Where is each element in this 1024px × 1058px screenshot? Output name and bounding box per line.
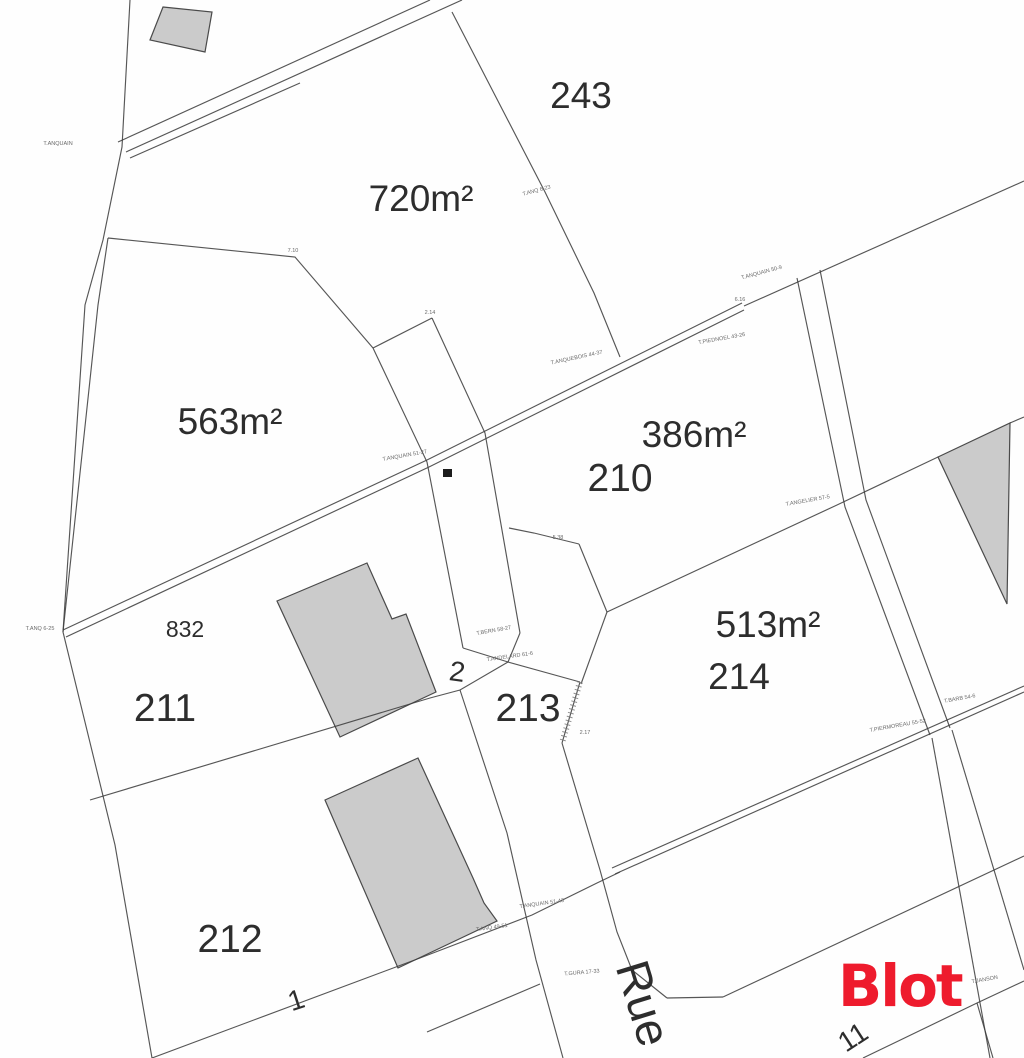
survey-mark-label: 6.16 (735, 297, 746, 303)
survey-mark-label: T.ANGELIER 57-5 (785, 494, 830, 508)
survey-mark-label: T.ANQUAIN 51-43 (519, 898, 564, 910)
parcel-211: 211 (134, 687, 196, 730)
lot-1: 1 (284, 983, 308, 1017)
area-513: 513m² (716, 604, 821, 645)
boundary-lot11-branch (977, 1003, 993, 1058)
divider-720-563 (108, 238, 373, 348)
street-bottom-flat (667, 997, 723, 998)
boundary-lot1-south (427, 984, 540, 1032)
boundary-triangle-ext (1010, 417, 1024, 423)
road-top-lower-edge-2 (130, 83, 300, 158)
survey-mark-label: T.BERN 58-27 (476, 625, 512, 637)
area-563: 563m² (178, 401, 283, 442)
survey-mark-label: T.BARB 54-6 (944, 693, 976, 704)
hatched-boundary (562, 682, 580, 743)
notch-210-b (579, 544, 607, 612)
building-parcel-212 (325, 758, 497, 968)
survey-mark-label: T.ANQ 6-25 (26, 626, 55, 632)
survey-mark-label: 7.10 (288, 248, 299, 254)
survey-mark-label: T.ANQUAIN 51-27 (382, 449, 427, 463)
parcel-832: 832 (166, 616, 204, 642)
building-parcel-211 (277, 563, 436, 737)
survey-mark-label: T.PIERMOREAU 55-52 (869, 718, 926, 734)
blot-logo: Blot (838, 957, 962, 1015)
strip-middle-left (373, 348, 463, 648)
survey-mark-label: T.ANDELARD 61-6 (486, 651, 533, 663)
divider-243-720 (452, 12, 620, 357)
diagonal-east-single (744, 181, 1024, 306)
boundary-south-214-upper (612, 686, 1024, 868)
survey-mark-label: T.ANQUAIN (43, 141, 72, 147)
road-right-west-edge (797, 278, 930, 735)
survey-mark-label: T.ANQUAIN 50-9 (741, 265, 783, 282)
divider-214-213 (581, 612, 607, 684)
boundary-south-214-lower (615, 692, 1024, 874)
survey-mark-label: 5.38 (553, 535, 564, 541)
street-rue: Rue (606, 954, 682, 1052)
lot-11: 11 (832, 1016, 873, 1058)
street-west-edge (460, 690, 563, 1058)
parcel-213: 213 (495, 687, 560, 730)
lot-2: 2 (447, 655, 467, 688)
parcel-214: 214 (708, 656, 770, 697)
boundary-left-inner (63, 238, 108, 632)
survey-mark-label: T.GURA 17-33 (564, 968, 600, 977)
building-top-left (150, 7, 212, 52)
area-720: 720m² (369, 178, 474, 219)
cadastral-plan-svg: 720m²563m²386m²513m²24321021483221121321… (0, 0, 1024, 1058)
parcel-243: 243 (550, 75, 612, 116)
parcel-212: 212 (197, 918, 262, 961)
road-right-east-edge (820, 270, 950, 728)
strip-middle-top (373, 318, 432, 348)
road-right-east-low (952, 730, 1024, 970)
divider-211-212 (90, 662, 508, 800)
parcel-210: 210 (587, 457, 652, 500)
area-386: 386m² (642, 414, 747, 455)
boundary-213-north (508, 662, 580, 682)
notch-210-a (509, 528, 579, 544)
survey-mark-label: T.PIEDNOEL 43-26 (698, 332, 746, 346)
survey-mark-label: T.ANQUEBOIS 44-37 (550, 350, 603, 367)
boundary-210-214 (607, 457, 938, 612)
boundary-left-outer (63, 0, 152, 1058)
cadastral-plan: 720m²563m²386m²513m²24321021483221121321… (0, 0, 1024, 1058)
survey-mark-label: 2.17 (580, 730, 591, 736)
building-east-triangle (938, 423, 1010, 604)
boundary-marker-square (443, 469, 452, 477)
survey-mark-label: 2.14 (425, 310, 436, 316)
